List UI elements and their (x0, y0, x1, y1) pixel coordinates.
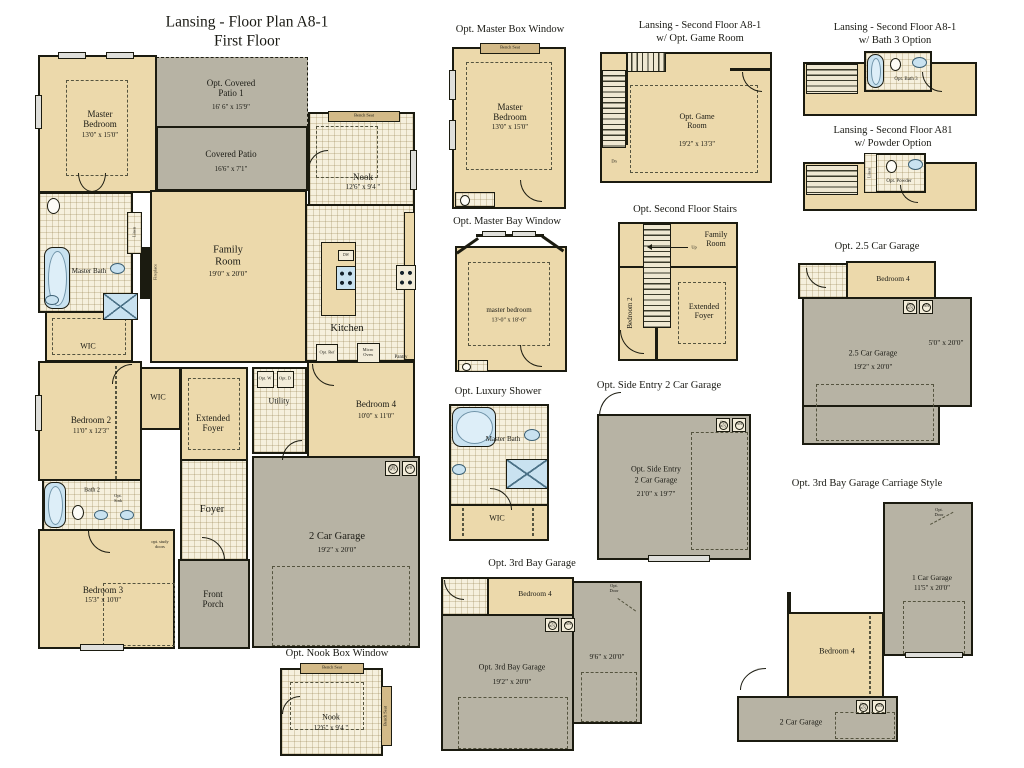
window (80, 644, 124, 651)
tray-ceiling-dash (468, 262, 550, 346)
label-foyer: Foyer (200, 504, 225, 516)
dims-bedroom3: 15'3" x 10'0" (85, 597, 121, 605)
dims-1-car-garage: 11'5" x 20'0" (914, 585, 950, 593)
label-master-bedroom: Master Bedroom (71, 109, 129, 129)
label-garage25: 2.5 Car Garage (849, 350, 898, 359)
label-nook: Nook (322, 714, 340, 723)
dims-nook: 12'6" x 9'4 " (346, 184, 381, 192)
toilet-icon (47, 198, 60, 214)
label-extended-foyer: Extended Foyer (681, 303, 727, 321)
label-bedroom4: Bedroom 4 (876, 275, 910, 283)
dims-3rd-bay-side: 9'6" x 20'0" (589, 653, 624, 661)
water-heater-icon: WH (402, 461, 417, 476)
label-wic: WIC (489, 515, 505, 524)
wall-stub (787, 592, 791, 612)
label-master-bath: Master Bath (484, 436, 522, 444)
dims-master-bedroom: 13'0" x 15'0" (492, 124, 528, 132)
opt-water-softener-icon: Opt W/S (545, 618, 559, 632)
shower-icon (506, 459, 548, 489)
page-title: Lansing - Floor Plan A8-1 (166, 13, 329, 30)
dims-side-entry: 21'0" x 19'7" (637, 490, 676, 498)
dims-master-bedroom: 13'0" x 15'0" (82, 132, 118, 140)
bench-seat-label: Bench Seat (500, 46, 520, 51)
label-extended-foyer: Extended Foyer (187, 413, 239, 433)
bench-seat-label: Bench Seat (354, 114, 374, 119)
label-bath3: Opt. Bath 3 (893, 77, 919, 83)
nook-ceiling-dash (290, 682, 364, 730)
label-3rd-bay: Opt. 3rd Bay Garage (479, 664, 546, 673)
opt-ws-label: Opt W/S (720, 421, 726, 428)
label-bedroom4: Bedroom 4 (518, 590, 552, 598)
door-arc-icon (740, 668, 766, 690)
dims-family-room: 19'0" x 20'0" (209, 270, 248, 278)
opt-ws-label: Opt W/S (549, 621, 555, 628)
garage-sill (648, 555, 710, 562)
label-front-porch: Front Porch (193, 589, 233, 609)
window (449, 70, 456, 100)
dims-garage: 19'2" x 20'0" (318, 546, 357, 554)
wic-dash (532, 508, 534, 536)
tub-basin-icon (871, 58, 881, 85)
wh-label: WH (407, 467, 413, 471)
label-game-room: Opt. Game Room (677, 113, 717, 131)
fireplace-label: Fireplace (154, 264, 159, 280)
window (449, 120, 456, 150)
label-family-room: Family Room (204, 244, 252, 268)
label-opt-door: Opt. Door (606, 584, 622, 594)
cooktop-icon (336, 266, 356, 290)
water-heater-icon: WH (732, 418, 746, 432)
label-opt-sink: Opt. Sink (110, 494, 126, 504)
diagram-subtitle: w/ Bath 3 Option (859, 35, 932, 47)
opt-dryer-label: Opt. D (278, 377, 292, 382)
label-master-bedroom: master bedroom (486, 307, 531, 315)
wh-label: WH (923, 305, 929, 309)
label-master-bedroom: Master Bedroom (483, 102, 537, 122)
diagram-title: Opt. Master Box Window (456, 24, 564, 36)
wh-label: WH (736, 423, 742, 427)
toilet-icon (886, 160, 897, 173)
floor-plan-sheet: Lansing - Floor Plan A8-1 First Floor Be… (0, 0, 1024, 768)
opt-ref-label: Opt. Ref (317, 351, 337, 356)
linen-label: Linen (868, 168, 873, 178)
stairs (806, 64, 858, 94)
sink-icon (908, 159, 923, 170)
diagram-title: Opt. Luxury Shower (455, 386, 542, 398)
label-wic1: WIC (80, 343, 96, 352)
label-family-room: Family Room (696, 231, 736, 249)
opt-washer-label: Opt. W (258, 377, 272, 382)
label-bedroom4: Bedroom 4 (819, 648, 855, 657)
fireplace-icon (140, 247, 150, 299)
bench-seat-label: Bench Seat (322, 666, 342, 671)
opt-water-softener-icon: Opt W/S (903, 300, 917, 314)
label-bath2: Bath 2 (81, 488, 103, 495)
label-bedroom2: Bedroom 2 (71, 415, 111, 425)
dims-garage25: 19'2" x 20'0" (854, 363, 893, 371)
garage-door-dash (458, 697, 568, 749)
pantry-label: Pantry (394, 355, 407, 361)
stair-wall (626, 52, 628, 145)
label-powder: Opt. Powder (884, 179, 914, 185)
stairs (602, 70, 626, 148)
stairs (626, 52, 666, 72)
label-utility: Utility (269, 398, 290, 407)
label-nook: Nook (353, 172, 373, 182)
window (482, 231, 506, 237)
diagram-title: Lansing - Second Floor A8-1 (639, 20, 762, 32)
linen-label: Linen (133, 227, 138, 237)
dims-garage25-side: 5'0" x 20'0" (928, 339, 963, 347)
garage-door-dash (581, 672, 637, 722)
dims-nook: 12'6" x 9'4 " (314, 725, 349, 733)
window (106, 52, 134, 59)
dims-covered-patio: 16'6" x 7'1" (215, 166, 248, 174)
stairs (806, 165, 858, 195)
window (410, 150, 417, 190)
sink-icon (45, 295, 59, 305)
water-heater-icon: WH (561, 618, 575, 632)
garage-door-dash (835, 712, 895, 739)
diagram-title: Opt. 3rd Bay Garage (488, 558, 575, 570)
diagram-title: Opt. Nook Box Window (286, 648, 389, 660)
label-bedroom4: Bedroom 4 (356, 399, 396, 409)
range-icon (396, 265, 416, 290)
opt-ws-label: Opt W/S (389, 465, 396, 472)
dishwasher-label: DW (343, 253, 349, 257)
diagram-subtitle: w/ Powder Option (855, 138, 932, 150)
label-wic2: WIC (150, 394, 166, 403)
tub-basin-icon (48, 486, 63, 525)
label-garage: 2 Car Garage (309, 531, 365, 543)
shower-icon (103, 293, 138, 320)
diagram-title: Lansing - Second Floor A81 (834, 125, 953, 137)
wic-dash (462, 508, 464, 536)
label-kitchen: Kitchen (330, 323, 363, 335)
label-master-bath: Master Bath (71, 268, 107, 276)
label-study-doors: opt. study doors (148, 540, 172, 550)
tub-icon (867, 54, 884, 88)
opt-water-softener-icon: Opt W/S (385, 461, 400, 476)
label-bedroom3: Bedroom 3 (83, 585, 123, 595)
window (58, 52, 86, 59)
label-side-entry-2: 2 Car Garage (635, 477, 678, 486)
toilet-icon (460, 195, 470, 206)
opt-water-softener-icon: Opt W/S (716, 418, 730, 432)
label-opt-patio: Opt. Covered Patio 1 (202, 78, 260, 98)
diagram-title: Opt. 3rd Bay Garage Carriage Style (792, 478, 942, 490)
diagram-subtitle: w/ Opt. Game Room (656, 33, 744, 45)
garage-door-dash (816, 384, 934, 441)
diagram-title: Opt. Master Bay Window (453, 216, 561, 228)
garage-door-dash (691, 432, 748, 550)
toilet-icon (890, 58, 901, 71)
tub-icon (44, 482, 66, 528)
window (35, 395, 42, 431)
label-bedroom2: Bedroom 2 (627, 297, 635, 328)
label-1-car-garage: 1 Car Garage (912, 574, 952, 582)
sink-icon (912, 57, 927, 68)
bedroom4-dash (869, 616, 871, 694)
bench-seat-label: Bench Seat (384, 706, 389, 726)
dims-opt-patio: 16' 6" x 15'9" (212, 104, 250, 112)
dims-master-bedroom: 13'-0" x 18'-0" (491, 318, 526, 325)
label-2-car-garage: 2 Car Garage (780, 719, 823, 728)
label-covered-patio: Covered Patio (205, 149, 257, 159)
sink-icon (524, 429, 540, 441)
opt-ws-label: Opt W/S (860, 703, 866, 710)
water-heater-icon: WH (919, 300, 933, 314)
diagram-title: Opt. Side Entry 2 Car Garage (597, 380, 721, 392)
window (512, 231, 536, 237)
sink-icon (120, 510, 134, 520)
toilet-icon (72, 505, 84, 520)
sink-icon (452, 464, 466, 475)
window (35, 95, 42, 129)
diagram-title: Opt. 2.5 Car Garage (835, 241, 920, 253)
microwave-label: Micro Oven (358, 348, 378, 358)
page-subtitle: First Floor (214, 32, 280, 49)
diagram-title: Lansing - Second Floor A8-1 (834, 22, 957, 34)
garage-door-dash (903, 601, 965, 654)
closet-wall (730, 68, 772, 71)
wh-label: WH (565, 623, 571, 627)
toilet-icon (462, 363, 471, 371)
wh-label: WH (876, 705, 882, 709)
diagram-title: Opt. Second Floor Stairs (633, 204, 737, 216)
garage-sill (905, 652, 963, 658)
door-arc-icon (599, 392, 621, 416)
dims-bedroom2: 11'0" x 12'3" (73, 428, 109, 436)
dims-game-room: 19'2" x 13'3" (679, 141, 715, 149)
stairs (643, 224, 671, 328)
sink-icon (110, 263, 125, 274)
up-arrow-head (647, 244, 652, 250)
label-side-entry-1: Opt. Side Entry (631, 466, 681, 475)
dims-3rd-bay: 19'2" x 20'0" (493, 678, 532, 686)
garage-door-dash (272, 566, 410, 646)
label-dn: Dn (611, 160, 616, 165)
dims-bedroom4: 10'0" x 11'0" (358, 413, 394, 421)
opt-ws-label: Opt W/S (907, 303, 913, 310)
up-arrow-line (652, 247, 688, 248)
sink-icon (94, 510, 108, 520)
